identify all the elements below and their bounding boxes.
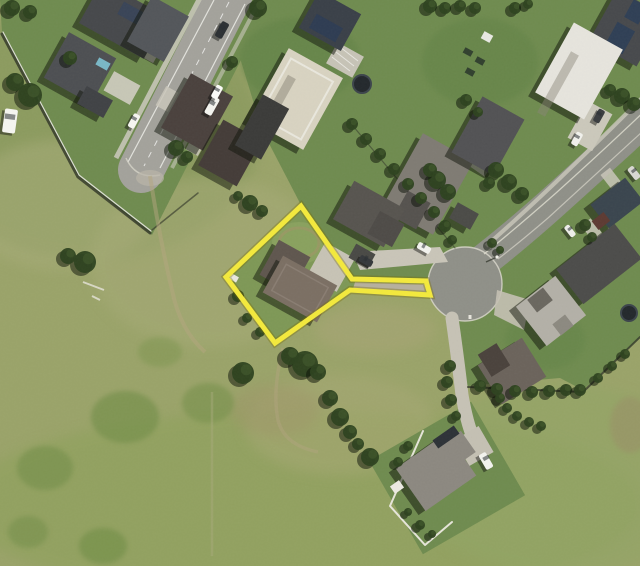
aerial-imagery[interactable]	[0, 0, 640, 566]
aerial-map-viewport[interactable]	[0, 0, 640, 566]
grain-overlay	[0, 0, 640, 566]
